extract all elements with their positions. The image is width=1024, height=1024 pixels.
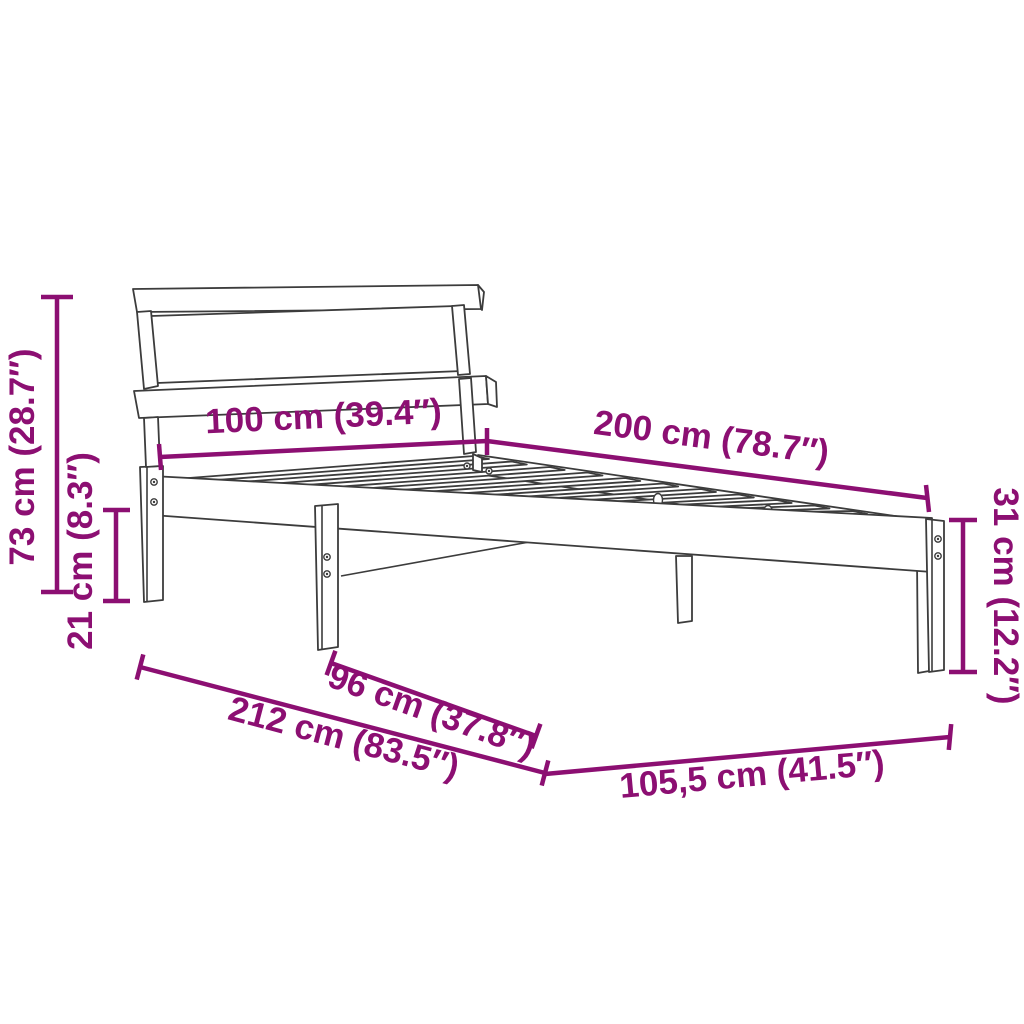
headboard-panel xyxy=(151,306,462,383)
front-rail xyxy=(152,476,932,572)
head-leg xyxy=(140,466,163,602)
bed-frame-dimension-diagram: 73 cm (28.7″) 21 cm (8.3″) 100 cm (39.4″… xyxy=(0,0,1024,1024)
dim-line-side-rail-height xyxy=(949,520,977,672)
dimension-diagram-canvas: 73 cm (28.7″) 21 cm (8.3″) 100 cm (39.4″… xyxy=(0,0,1024,1024)
back-corner-bracket xyxy=(473,454,482,472)
dim-label-headboard-height: 73 cm (28.7″) xyxy=(3,348,42,565)
bed-drawing xyxy=(133,285,944,673)
dim-label-bed-length: 200 cm (78.7″) xyxy=(592,403,832,472)
dim-label-side-rail-height: 31 cm (12.2″) xyxy=(986,487,1024,704)
dim-label-under-bed-clearance: 21 cm (8.3″) xyxy=(61,452,100,650)
headboard-left-post-lower xyxy=(144,417,160,467)
headboard-bottom-rail-endcap xyxy=(486,376,497,407)
dim-label-total-width: 105,5 cm (41.5″) xyxy=(618,743,886,806)
rear-middle-leg xyxy=(676,556,692,623)
foot-leg xyxy=(926,519,944,672)
dim-line-under-bed-clearance xyxy=(103,510,130,601)
